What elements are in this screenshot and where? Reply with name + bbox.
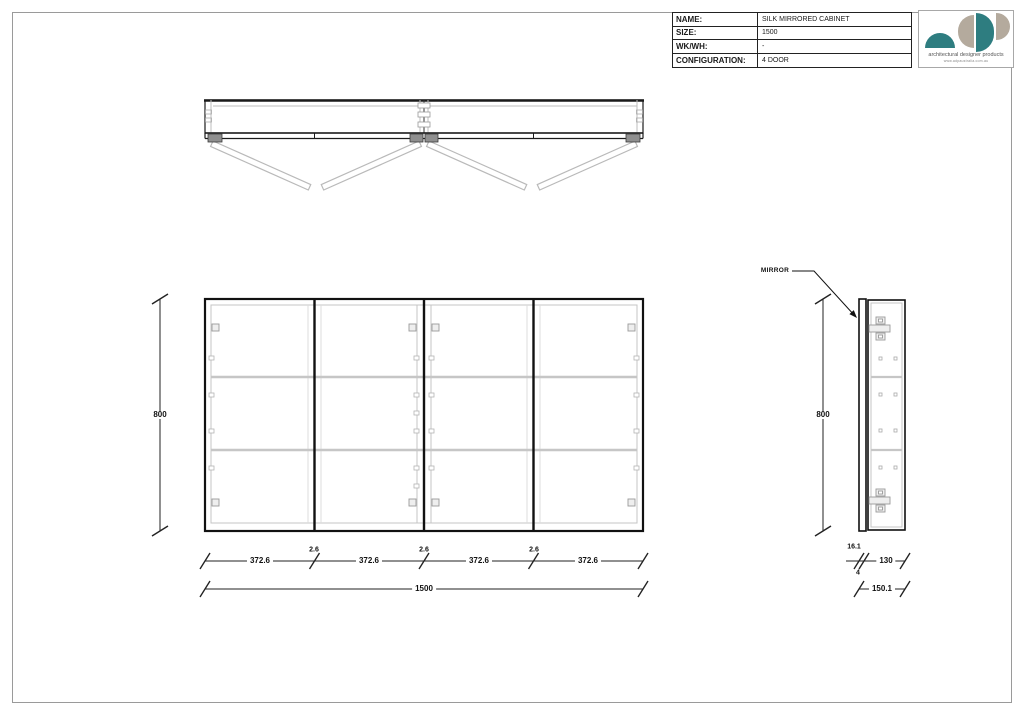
mirror-label: MIRROR xyxy=(761,268,789,275)
dim-door-width-2: 372.6 xyxy=(356,557,382,565)
plan-centre-divider xyxy=(418,100,430,133)
dim-mirror-thickness: 16.1 xyxy=(846,544,862,551)
logo-p-shape xyxy=(996,13,1010,40)
dim-door-width-1: 372.6 xyxy=(247,557,273,565)
title-row-configuration: CONFIGURATION: 4 DOOR xyxy=(673,54,911,68)
logo-tagline: architectural designer products xyxy=(919,53,1013,59)
title-value-wkwh: - xyxy=(758,40,911,53)
title-label-wkwh: WK/WH: xyxy=(673,40,758,53)
title-row-wkwh: WK/WH: - xyxy=(673,40,911,54)
title-value-configuration: 4 DOOR xyxy=(758,54,911,68)
dim-overall-width: 1500 xyxy=(412,585,436,593)
front-elevation xyxy=(205,299,643,531)
dim-door-gap-3: 2.6 xyxy=(528,547,540,554)
side-carcass xyxy=(868,300,905,530)
title-label-size: SIZE: xyxy=(673,27,758,40)
dim-door-gap-2: 2.6 xyxy=(418,547,430,554)
dim-door-gap-1: 2.6 xyxy=(308,547,320,554)
title-row-name: NAME: SILK MIRRORED CABINET xyxy=(673,13,911,27)
dim-side-height: 800 xyxy=(813,411,832,419)
cabinet-drawing xyxy=(0,0,1024,717)
plan-open-doors xyxy=(211,141,638,190)
adp-logo: architectural designer products www.adpa… xyxy=(918,10,1014,68)
side-elevation xyxy=(792,271,905,531)
logo-website: www.adpaustralia.com.au xyxy=(919,60,1013,64)
dim-mirror-gap: 4 xyxy=(855,570,861,577)
logo-a-shape xyxy=(925,33,955,48)
title-block: NAME: SILK MIRRORED CABINET SIZE: 1500 W… xyxy=(672,12,912,68)
title-value-name: SILK MIRRORED CABINET xyxy=(758,13,911,26)
drawing-sheet: 800 800 372.6 372.6 372.6 372.6 2.6 2.6 … xyxy=(0,0,1024,717)
dim-door-width-4: 372.6 xyxy=(575,557,601,565)
dim-carcass-depth: 130 xyxy=(876,557,895,565)
logo-d-right-shape xyxy=(976,13,994,52)
mirror-leader-line xyxy=(792,271,857,318)
dim-front-height: 800 xyxy=(150,411,169,419)
title-label-configuration: CONFIGURATION: xyxy=(673,54,758,68)
title-label-name: NAME: xyxy=(673,13,758,26)
logo-d-left-shape xyxy=(958,15,974,48)
dim-overall-depth: 150.1 xyxy=(869,585,895,593)
title-row-size: SIZE: 1500 xyxy=(673,27,911,41)
mirror-door-profile xyxy=(859,299,866,531)
dim-door-width-3: 372.6 xyxy=(466,557,492,565)
title-value-size: 1500 xyxy=(758,27,911,40)
plan-view xyxy=(204,100,644,190)
